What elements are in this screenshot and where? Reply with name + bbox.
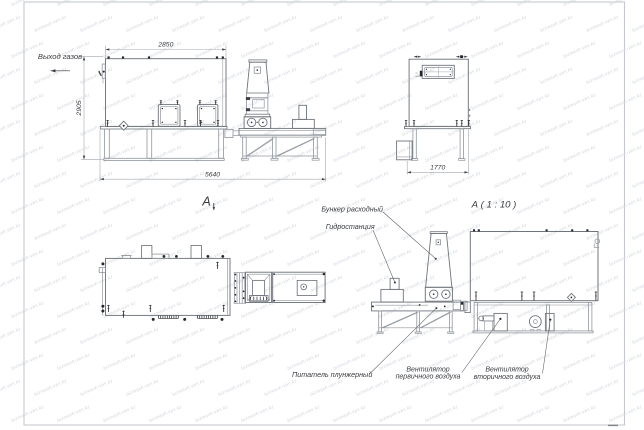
svg-text:bizmash-ves.kz: bizmash-ves.kz — [148, 0, 183, 7]
svg-text:bizmash-ves.kz: bizmash-ves.kz — [608, 300, 643, 319]
svg-text:bizmash-ves.kz: bizmash-ves.kz — [562, 352, 597, 371]
svg-text:bizmash-ves.kz: bizmash-ves.kz — [332, 0, 367, 7]
svg-text:bizmash-ves.kz: bizmash-ves.kz — [171, 222, 206, 241]
svg-text:bizmash-ves.kz: bizmash-ves.kz — [286, 0, 321, 7]
svg-text:bizmash-ves.kz: bizmash-ves.kz — [355, 118, 390, 137]
svg-text:bizmash-ves.kz: bizmash-ves.kz — [125, 14, 160, 33]
svg-text:bizmash-ves.kz: bizmash-ves.kz — [240, 0, 275, 7]
svg-text:bizmash-ves.kz: bizmash-ves.kz — [240, 352, 275, 371]
svg-text:bizmash-ves.kz: bizmash-ves.kz — [240, 196, 275, 215]
svg-text:bizmash-ves.kz: bizmash-ves.kz — [585, 14, 620, 33]
svg-text:bizmash-ves.kz: bizmash-ves.kz — [562, 0, 597, 7]
svg-text:bizmash-ves.kz: bizmash-ves.kz — [10, 196, 45, 215]
svg-text:bizmash-ves.kz: bizmash-ves.kz — [378, 196, 413, 215]
svg-text:bizmash-ves.kz: bizmash-ves.kz — [332, 352, 367, 371]
svg-text:bizmash-ves.kz: bizmash-ves.kz — [79, 222, 114, 241]
svg-text:Вентилятор: Вентилятор — [485, 367, 528, 374]
svg-text:bizmash-ves.kz: bizmash-ves.kz — [332, 404, 367, 423]
svg-text:bizmash-ves.kz: bizmash-ves.kz — [539, 326, 574, 345]
svg-text:bizmash-ves.kz: bizmash-ves.kz — [286, 196, 321, 215]
svg-text:bizmash-ves.kz: bizmash-ves.kz — [470, 92, 505, 111]
svg-text:bizmash-ves.kz: bizmash-ves.kz — [194, 0, 229, 7]
svg-text:bizmash-ves.kz: bizmash-ves.kz — [217, 378, 252, 397]
svg-text:bizmash-ves.kz: bizmash-ves.kz — [585, 118, 620, 137]
svg-text:bizmash-ves.kz: bizmash-ves.kz — [562, 92, 597, 111]
svg-text:bizmash-ves.kz: bizmash-ves.kz — [309, 66, 344, 85]
svg-text:bizmash-ves.kz: bizmash-ves.kz — [286, 92, 321, 111]
svg-text:bizmash-ves.kz: bizmash-ves.kz — [125, 66, 160, 85]
svg-text:bizmash-ves.kz: bizmash-ves.kz — [562, 144, 597, 163]
svg-text:bizmash-ves.kz: bizmash-ves.kz — [0, 222, 22, 241]
svg-text:А: А — [201, 195, 210, 209]
svg-text:bizmash-ves.kz: bizmash-ves.kz — [355, 170, 390, 189]
svg-text:bizmash-ves.kz: bizmash-ves.kz — [493, 14, 528, 33]
svg-text:bizmash-ves.kz: bizmash-ves.kz — [33, 66, 68, 85]
svg-text:bizmash-ves.kz: bizmash-ves.kz — [631, 326, 644, 345]
svg-text:bizmash-ves.kz: bizmash-ves.kz — [286, 40, 321, 59]
svg-text:bizmash-ves.kz: bizmash-ves.kz — [56, 196, 91, 215]
svg-text:2905: 2905 — [76, 100, 83, 116]
svg-text:bizmash-ves.kz: bizmash-ves.kz — [33, 378, 68, 397]
svg-text:bizmash-ves.kz: bizmash-ves.kz — [309, 274, 344, 293]
svg-text:bizmash-ves.kz: bizmash-ves.kz — [148, 248, 183, 267]
svg-text:bizmash-ves.kz: bizmash-ves.kz — [539, 118, 574, 137]
svg-text:bizmash-ves.kz: bizmash-ves.kz — [493, 170, 528, 189]
svg-text:bizmash-ves.kz: bizmash-ves.kz — [585, 326, 620, 345]
svg-text:bizmash-ves.kz: bizmash-ves.kz — [125, 326, 160, 345]
svg-text:bizmash-ves.kz: bizmash-ves.kz — [79, 66, 114, 85]
svg-text:bizmash-ves.kz: bizmash-ves.kz — [286, 248, 321, 267]
svg-text:bizmash-ves.kz: bizmash-ves.kz — [332, 40, 367, 59]
svg-text:bizmash-ves.kz: bizmash-ves.kz — [424, 404, 459, 423]
svg-text:bizmash-ves.kz: bizmash-ves.kz — [79, 326, 114, 345]
svg-text:bizmash-ves.kz: bizmash-ves.kz — [608, 144, 643, 163]
svg-text:bizmash-ves.kz: bizmash-ves.kz — [56, 144, 91, 163]
svg-text:bizmash-ves.kz: bizmash-ves.kz — [79, 14, 114, 33]
svg-text:bizmash-ves.kz: bizmash-ves.kz — [56, 300, 91, 319]
svg-text:bizmash-ves.kz: bizmash-ves.kz — [194, 352, 229, 371]
svg-text:bizmash-ves.kz: bizmash-ves.kz — [194, 196, 229, 215]
svg-text:bizmash-ves.kz: bizmash-ves.kz — [516, 404, 551, 423]
svg-text:вторичного воздуха: вторичного воздуха — [474, 373, 541, 381]
svg-text:bizmash-ves.kz: bizmash-ves.kz — [0, 170, 22, 189]
svg-text:bizmash-ves.kz: bizmash-ves.kz — [240, 404, 275, 423]
svg-text:bizmash-ves.kz: bizmash-ves.kz — [56, 352, 91, 371]
svg-text:bizmash-ves.kz: bizmash-ves.kz — [125, 378, 160, 397]
svg-text:bizmash-ves.kz: bizmash-ves.kz — [102, 352, 137, 371]
svg-text:bizmash-ves.kz: bizmash-ves.kz — [424, 40, 459, 59]
svg-text:bizmash-ves.kz: bizmash-ves.kz — [608, 352, 643, 371]
svg-text:А ( 1 : 10 ): А ( 1 : 10 ) — [471, 200, 517, 211]
svg-text:bizmash-ves.kz: bizmash-ves.kz — [56, 404, 91, 423]
svg-text:bizmash-ves.kz: bizmash-ves.kz — [171, 66, 206, 85]
svg-text:bizmash-ves.kz: bizmash-ves.kz — [401, 14, 436, 33]
svg-text:bizmash-ves.kz: bizmash-ves.kz — [516, 196, 551, 215]
svg-text:bizmash-ves.kz: bizmash-ves.kz — [447, 14, 482, 33]
svg-text:bizmash-ves.kz: bizmash-ves.kz — [102, 404, 137, 423]
svg-text:bizmash-ves.kz: bizmash-ves.kz — [585, 66, 620, 85]
svg-text:bizmash-ves.kz: bizmash-ves.kz — [470, 40, 505, 59]
svg-text:Вентилятор: Вентилятор — [406, 366, 449, 373]
svg-text:bizmash-ves.kz: bizmash-ves.kz — [355, 66, 390, 85]
svg-text:bizmash-ves.kz: bizmash-ves.kz — [539, 14, 574, 33]
svg-text:bizmash-ves.kz: bizmash-ves.kz — [240, 40, 275, 59]
svg-text:bizmash-ves.kz: bizmash-ves.kz — [332, 144, 367, 163]
svg-text:bizmash-ves.kz: bizmash-ves.kz — [125, 222, 160, 241]
svg-text:bizmash-ves.kz: bizmash-ves.kz — [148, 352, 183, 371]
svg-text:bizmash-ves.kz: bizmash-ves.kz — [493, 118, 528, 137]
svg-text:bizmash-ves.kz: bizmash-ves.kz — [286, 352, 321, 371]
svg-text:Гидростанция: Гидростанция — [326, 222, 375, 231]
svg-text:bizmash-ves.kz: bizmash-ves.kz — [33, 170, 68, 189]
svg-text:bizmash-ves.kz: bizmash-ves.kz — [516, 144, 551, 163]
svg-text:bizmash-ves.kz: bizmash-ves.kz — [0, 14, 22, 33]
svg-text:bizmash-ves.kz: bizmash-ves.kz — [470, 248, 505, 267]
svg-text:bizmash-ves.kz: bizmash-ves.kz — [217, 326, 252, 345]
svg-text:bizmash-ves.kz: bizmash-ves.kz — [378, 0, 413, 7]
svg-text:bizmash-ves.kz: bizmash-ves.kz — [33, 222, 68, 241]
svg-text:bizmash-ves.kz: bizmash-ves.kz — [148, 404, 183, 423]
svg-text:bizmash-ves.kz: bizmash-ves.kz — [102, 300, 137, 319]
svg-text:bizmash-ves.kz: bizmash-ves.kz — [309, 14, 344, 33]
svg-text:bizmash-ves.kz: bizmash-ves.kz — [516, 40, 551, 59]
svg-text:bizmash-ves.kz: bizmash-ves.kz — [286, 404, 321, 423]
svg-text:bizmash-ves.kz: bizmash-ves.kz — [378, 92, 413, 111]
svg-text:bizmash-ves.kz: bizmash-ves.kz — [0, 326, 22, 345]
svg-text:bizmash-ves.kz: bizmash-ves.kz — [401, 274, 436, 293]
svg-text:bizmash-ves.kz: bizmash-ves.kz — [470, 144, 505, 163]
svg-text:bizmash-ves.kz: bizmash-ves.kz — [33, 326, 68, 345]
svg-text:bizmash-ves.kz: bizmash-ves.kz — [631, 118, 644, 137]
svg-text:Выход газов: Выход газов — [38, 52, 82, 61]
svg-text:bizmash-ves.kz: bizmash-ves.kz — [493, 274, 528, 293]
svg-text:bizmash-ves.kz: bizmash-ves.kz — [608, 92, 643, 111]
svg-text:bizmash-ves.kz: bizmash-ves.kz — [148, 196, 183, 215]
svg-text:bizmash-ves.kz: bizmash-ves.kz — [493, 326, 528, 345]
svg-text:bizmash-ves.kz: bizmash-ves.kz — [33, 14, 68, 33]
svg-text:bizmash-ves.kz: bizmash-ves.kz — [263, 222, 298, 241]
svg-text:bizmash-ves.kz: bizmash-ves.kz — [125, 118, 160, 137]
svg-text:bizmash-ves.kz: bizmash-ves.kz — [378, 40, 413, 59]
svg-text:bizmash-ves.kz: bizmash-ves.kz — [355, 14, 390, 33]
svg-text:bizmash-ves.kz: bizmash-ves.kz — [539, 378, 574, 397]
svg-text:bizmash-ves.kz: bizmash-ves.kz — [539, 170, 574, 189]
svg-text:bizmash-ves.kz: bizmash-ves.kz — [263, 378, 298, 397]
svg-text:bizmash-ves.kz: bizmash-ves.kz — [33, 118, 68, 137]
svg-text:bizmash-ves.kz: bizmash-ves.kz — [10, 404, 45, 423]
svg-text:bizmash-ves.kz: bizmash-ves.kz — [539, 274, 574, 293]
svg-text:bizmash-ves.kz: bizmash-ves.kz — [631, 274, 644, 293]
svg-text:2850: 2850 — [157, 42, 173, 49]
svg-text:bizmash-ves.kz: bizmash-ves.kz — [608, 0, 643, 7]
svg-text:bizmash-ves.kz: bizmash-ves.kz — [10, 92, 45, 111]
svg-text:5640: 5640 — [205, 171, 220, 178]
svg-text:bizmash-ves.kz: bizmash-ves.kz — [355, 326, 390, 345]
svg-text:bizmash-ves.kz: bizmash-ves.kz — [10, 352, 45, 371]
svg-text:bizmash-ves.kz: bizmash-ves.kz — [631, 66, 644, 85]
svg-text:bizmash-ves.kz: bizmash-ves.kz — [56, 0, 91, 7]
svg-text:bizmash-ves.kz: bizmash-ves.kz — [447, 118, 482, 137]
svg-text:bizmash-ves.kz: bizmash-ves.kz — [102, 0, 137, 7]
svg-text:bizmash-ves.kz: bizmash-ves.kz — [309, 326, 344, 345]
svg-text:bizmash-ves.kz: bizmash-ves.kz — [171, 14, 206, 33]
svg-text:bizmash-ves.kz: bizmash-ves.kz — [125, 274, 160, 293]
svg-text:bizmash-ves.kz: bizmash-ves.kz — [447, 66, 482, 85]
svg-text:bizmash-ves.kz: bizmash-ves.kz — [424, 0, 459, 7]
svg-text:bizmash-ves.kz: bizmash-ves.kz — [355, 378, 390, 397]
svg-text:bizmash-ves.kz: bizmash-ves.kz — [33, 274, 68, 293]
svg-text:bizmash-ves.kz: bizmash-ves.kz — [378, 248, 413, 267]
svg-text:bizmash-ves.kz: bizmash-ves.kz — [217, 14, 252, 33]
svg-text:bizmash-ves.kz: bizmash-ves.kz — [355, 274, 390, 293]
svg-text:bizmash-ves.kz: bizmash-ves.kz — [332, 92, 367, 111]
svg-text:bizmash-ves.kz: bizmash-ves.kz — [424, 92, 459, 111]
svg-text:bizmash-ves.kz: bizmash-ves.kz — [562, 196, 597, 215]
svg-text:bizmash-ves.kz: bizmash-ves.kz — [470, 0, 505, 7]
svg-text:bizmash-ves.kz: bizmash-ves.kz — [10, 144, 45, 163]
svg-text:bizmash-ves.kz: bizmash-ves.kz — [424, 196, 459, 215]
svg-text:bizmash-ves.kz: bizmash-ves.kz — [0, 274, 22, 293]
svg-text:bizmash-ves.kz: bizmash-ves.kz — [401, 66, 436, 85]
svg-text:bizmash-ves.kz: bizmash-ves.kz — [608, 248, 643, 267]
svg-text:bizmash-ves.kz: bizmash-ves.kz — [217, 222, 252, 241]
svg-text:bizmash-ves.kz: bizmash-ves.kz — [171, 378, 206, 397]
svg-text:bizmash-ves.kz: bizmash-ves.kz — [0, 66, 22, 85]
svg-text:bizmash-ves.kz: bizmash-ves.kz — [562, 40, 597, 59]
svg-text:bizmash-ves.kz: bizmash-ves.kz — [10, 248, 45, 267]
svg-text:bizmash-ves.kz: bizmash-ves.kz — [516, 248, 551, 267]
svg-text:bizmash-ves.kz: bizmash-ves.kz — [0, 378, 22, 397]
svg-text:bizmash-ves.kz: bizmash-ves.kz — [79, 274, 114, 293]
svg-text:bizmash-ves.kz: bizmash-ves.kz — [401, 326, 436, 345]
svg-text:bizmash-ves.kz: bizmash-ves.kz — [631, 170, 644, 189]
svg-text:bizmash-ves.kz: bizmash-ves.kz — [401, 170, 436, 189]
svg-text:bizmash-ves.kz: bizmash-ves.kz — [240, 248, 275, 267]
svg-text:bizmash-ves.kz: bizmash-ves.kz — [608, 196, 643, 215]
svg-text:bizmash-ves.kz: bizmash-ves.kz — [470, 404, 505, 423]
svg-text:bizmash-ves.kz: bizmash-ves.kz — [585, 170, 620, 189]
svg-text:bizmash-ves.kz: bizmash-ves.kz — [148, 300, 183, 319]
svg-text:bizmash-ves.kz: bizmash-ves.kz — [56, 92, 91, 111]
svg-text:bizmash-ves.kz: bizmash-ves.kz — [102, 248, 137, 267]
svg-text:bizmash-ves.kz: bizmash-ves.kz — [585, 274, 620, 293]
svg-text:bizmash-ves.kz: bizmash-ves.kz — [608, 404, 643, 423]
svg-text:bizmash-ves.kz: bizmash-ves.kz — [102, 92, 137, 111]
svg-text:bizmash-ves.kz: bizmash-ves.kz — [10, 0, 45, 7]
svg-text:bizmash-ves.kz: bizmash-ves.kz — [493, 66, 528, 85]
svg-text:Бункер расходный: Бункер расходный — [321, 204, 383, 213]
svg-text:bizmash-ves.kz: bizmash-ves.kz — [631, 14, 644, 33]
svg-text:bizmash-ves.kz: bizmash-ves.kz — [79, 378, 114, 397]
svg-text:bizmash-ves.kz: bizmash-ves.kz — [332, 248, 367, 267]
svg-text:bizmash-ves.kz: bizmash-ves.kz — [608, 40, 643, 59]
svg-text:bizmash-ves.kz: bizmash-ves.kz — [516, 0, 551, 7]
svg-text:bizmash-ves.kz: bizmash-ves.kz — [516, 92, 551, 111]
svg-text:bizmash-ves.kz: bizmash-ves.kz — [401, 378, 436, 397]
svg-text:bizmash-ves.kz: bizmash-ves.kz — [102, 196, 137, 215]
svg-text:bizmash-ves.kz: bizmash-ves.kz — [263, 14, 298, 33]
svg-text:bizmash-ves.kz: bizmash-ves.kz — [378, 404, 413, 423]
svg-text:bizmash-ves.kz: bizmash-ves.kz — [562, 404, 597, 423]
svg-text:bizmash-ves.kz: bizmash-ves.kz — [0, 118, 22, 137]
svg-text:bizmash-ves.kz: bizmash-ves.kz — [424, 144, 459, 163]
svg-text:bizmash-ves.kz: bizmash-ves.kz — [56, 248, 91, 267]
svg-text:bizmash-ves.kz: bizmash-ves.kz — [171, 326, 206, 345]
svg-text:bizmash-ves.kz: bizmash-ves.kz — [562, 248, 597, 267]
svg-text:bizmash-ves.kz: bizmash-ves.kz — [539, 66, 574, 85]
svg-text:bizmash-ves.kz: bizmash-ves.kz — [263, 66, 298, 85]
svg-text:первичного воздуха: первичного воздуха — [396, 373, 461, 381]
svg-text:bizmash-ves.kz: bizmash-ves.kz — [10, 300, 45, 319]
svg-text:bizmash-ves.kz: bizmash-ves.kz — [332, 300, 367, 319]
svg-text:bizmash-ves.kz: bizmash-ves.kz — [194, 404, 229, 423]
svg-text:bizmash-ves.kz: bizmash-ves.kz — [171, 274, 206, 293]
svg-text:1770: 1770 — [430, 164, 445, 171]
svg-text:bizmash-ves.kz: bizmash-ves.kz — [585, 378, 620, 397]
svg-text:bizmash-ves.kz: bizmash-ves.kz — [631, 378, 644, 397]
svg-text:bizmash-ves.kz: bizmash-ves.kz — [631, 222, 644, 241]
svg-text:bizmash-ves.kz: bizmash-ves.kz — [309, 378, 344, 397]
svg-text:Питатель плунжерный: Питатель плунжерный — [292, 370, 372, 379]
svg-text:bizmash-ves.kz: bizmash-ves.kz — [263, 326, 298, 345]
svg-text:bizmash-ves.kz: bizmash-ves.kz — [263, 274, 298, 293]
